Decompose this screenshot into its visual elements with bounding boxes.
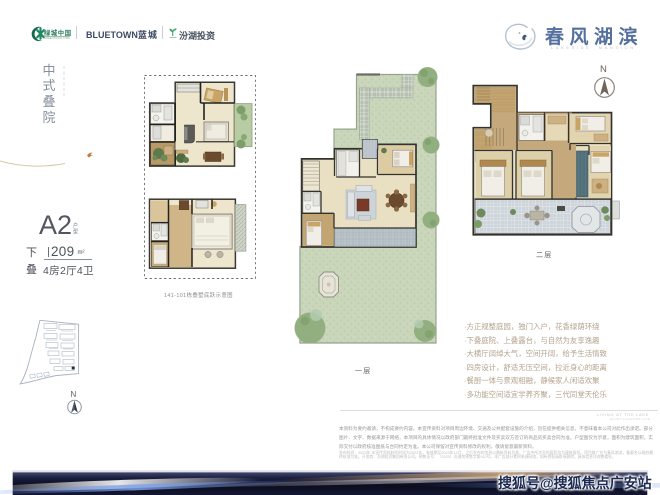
svg-text:N: N xyxy=(600,64,607,75)
svg-text:N: N xyxy=(71,390,77,399)
